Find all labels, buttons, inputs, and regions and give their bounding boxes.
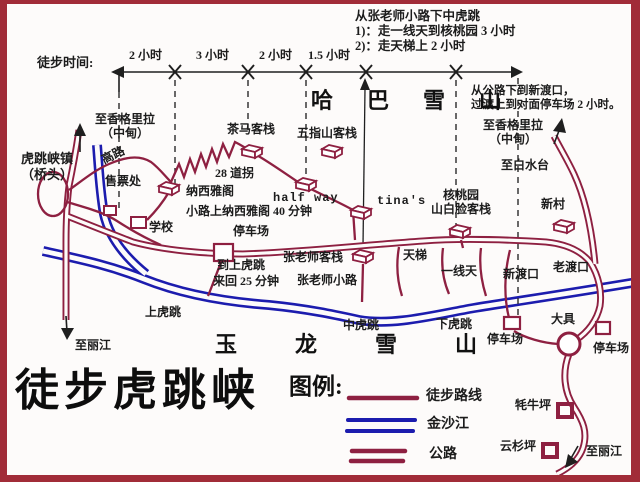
- roundtrip-25min-label: 来回 25 分钟: [213, 274, 279, 288]
- ferry-parking-lot-icon: [504, 317, 520, 329]
- qiaotou-bridge-label: （桥头）: [7, 168, 87, 182]
- to-shangrila-left-label: 至香格里拉: [83, 112, 167, 126]
- walnut-garden-label: 核桃园: [423, 188, 499, 202]
- segment-4-label: 1.5 小时: [308, 48, 350, 62]
- tinas-label: tina's: [377, 194, 426, 208]
- tianti-label: 天梯: [403, 248, 427, 262]
- daju-label: 大具: [551, 312, 575, 326]
- legend-road-label: 公路: [429, 448, 457, 462]
- yunshanping-icon: [543, 444, 557, 457]
- daju-parking-label: 停车场: [593, 341, 629, 355]
- school-label: 学校: [149, 220, 173, 234]
- naxi-path-note-label: 小路上纳西雅阁 40 分钟: [186, 204, 312, 218]
- wuzhishan-guesthouse-icon: [322, 145, 342, 158]
- route-note-option1: 1)：走一线天到核桃园 3 小时: [355, 24, 515, 39]
- zhang-inn-label: 张老师客栈: [283, 250, 343, 264]
- legend-heading: 图例:: [289, 380, 343, 394]
- lower-tiger-label: 下虎跳: [436, 317, 472, 331]
- upper-tiger-label: 上虎跳: [145, 305, 181, 319]
- chama-inn-label: 茶马客栈: [227, 122, 275, 136]
- legend-trail-label: 徒步路线: [426, 390, 482, 404]
- segment-1-label: 2 小时: [129, 48, 162, 62]
- old-ferry-label: 老渡口: [553, 260, 589, 274]
- xincun-house-icon: [554, 220, 574, 233]
- maoniuping-icon: [558, 404, 572, 417]
- ticket-office-icon: [104, 206, 116, 215]
- to-lijiang-right-label: 至丽江: [586, 444, 622, 458]
- route-note-option2: 2)：走天梯上 2 小时: [355, 39, 465, 54]
- to-shangrila-right-label: 至香格里拉: [465, 118, 561, 132]
- map-title: 徒步虎跳峡: [15, 384, 260, 398]
- walnut-garden-guesthouse-icon: [450, 225, 470, 238]
- legend-river-label: 金沙江: [427, 418, 469, 432]
- halfway-guesthouse-icon: [296, 178, 316, 191]
- ticket-office-label: 售票处: [105, 174, 141, 188]
- middle-tiger-label: 中虎跳: [343, 318, 379, 332]
- yixiantian-label: 一线天: [441, 264, 477, 278]
- parking-top-label: 停车场: [233, 224, 269, 238]
- segment-3-label: 2 小时: [259, 48, 292, 62]
- to-baishuitai-label: 至白水台: [501, 158, 549, 172]
- zhang-guesthouse-icon: [353, 250, 373, 263]
- legend-swatches: [347, 398, 417, 461]
- naxi-inn-label: 纳西雅阁: [186, 184, 234, 198]
- segment-2-label: 3 小时: [196, 48, 229, 62]
- route-note-title: 从张老师小路下中虎跳: [355, 9, 480, 24]
- new-ferry-label: 新渡口: [503, 267, 539, 281]
- walk-time-label: 徒步时间:: [37, 56, 93, 70]
- halfway-label: half way: [273, 191, 339, 205]
- chama-guesthouse-icon: [242, 145, 262, 158]
- bends-28-label: 28 道拐: [215, 166, 254, 180]
- zhongdian-left-label: （中甸）: [83, 126, 167, 140]
- xincun-label: 新村: [541, 197, 565, 211]
- to-lijiang-left-label: 至丽江: [75, 338, 111, 352]
- haba-mountain-label: 哈巴雪山: [311, 94, 535, 108]
- tinas-guesthouse-icon: [351, 206, 371, 219]
- zhang-path-label: 张老师小路: [297, 273, 357, 287]
- qiaotou-town-label: 虎跳峡镇: [7, 152, 87, 166]
- shanbailian-inn-label: 山白脸客栈: [423, 202, 499, 216]
- naxi-guesthouse-icon: [159, 182, 179, 195]
- to-upper-tiger-label: 到上虎跳: [217, 258, 265, 272]
- school-icon: [131, 217, 146, 228]
- ferry-parking-label: 停车场: [487, 332, 523, 346]
- maoniuping-label: 牦牛坪: [515, 398, 551, 412]
- daju-circle-icon: [558, 333, 580, 355]
- yunshanping-label: 云杉坪: [500, 439, 536, 453]
- zhongdian-right-label: （中甸）: [465, 132, 561, 146]
- wuzhishan-inn-label: 五指山客栈: [297, 126, 357, 140]
- daju-parking-lot-icon: [596, 322, 610, 334]
- gorge-map: 徒步时间: 2 小时 3 小时 2 小时 1.5 小时 从张老师小路下中虎跳 1…: [0, 0, 640, 482]
